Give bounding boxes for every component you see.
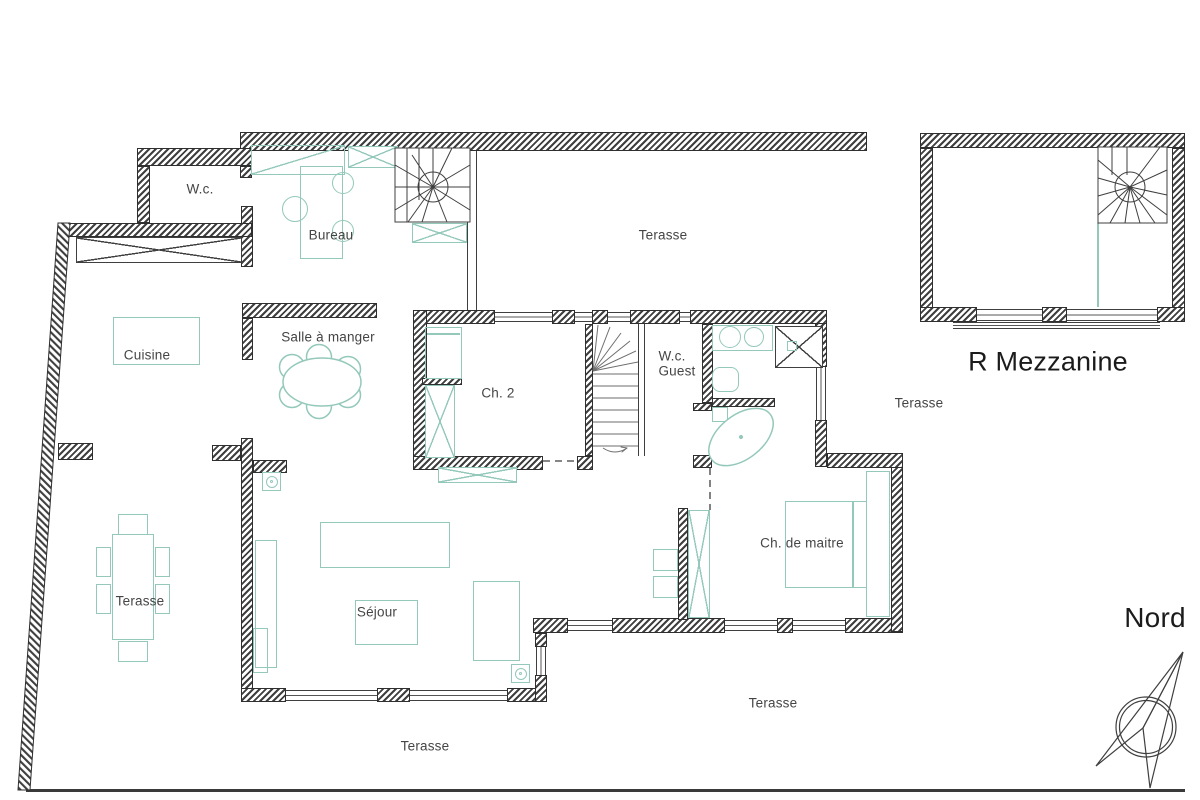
terrace-chair	[155, 547, 170, 577]
room-label-wc-guest-line2: Guest	[658, 364, 695, 379]
terrace-chair	[96, 547, 111, 577]
mezzanine-wall	[1172, 148, 1185, 322]
window	[1067, 309, 1157, 321]
wall-segment	[592, 310, 608, 324]
closet	[76, 237, 242, 263]
wall-segment	[422, 378, 462, 385]
area-label-terasse-left: Terasse	[116, 594, 165, 609]
wall-segment	[64, 223, 252, 237]
desk-chair	[332, 172, 354, 194]
terrace-chair	[96, 584, 111, 614]
room-label-ch2: Ch. 2	[481, 386, 514, 401]
wall-segment	[612, 618, 725, 633]
title-r-mezzanine: R Mezzanine	[968, 347, 1128, 378]
opening-dashed-line	[543, 461, 710, 510]
partition	[638, 324, 645, 456]
area-label-terasse-bottom-right: Terasse	[749, 696, 798, 711]
wall-segment	[533, 618, 568, 633]
area-label-terasse-right: Terasse	[895, 396, 944, 411]
wall-segment	[535, 675, 547, 702]
window	[977, 309, 1042, 321]
plan-linework	[0, 0, 1200, 800]
wall-segment	[242, 318, 253, 360]
terrace-chair	[118, 514, 148, 535]
wall-segment	[535, 633, 547, 647]
mezzanine-wall	[920, 133, 1185, 148]
room-label-ch-de-maitre: Ch. de maitre	[760, 536, 844, 551]
partition	[467, 151, 477, 310]
wardrobe	[425, 385, 455, 458]
mezzanine-wall	[920, 148, 933, 322]
wardrobe	[866, 471, 890, 617]
speaker	[262, 472, 281, 491]
wall-segment	[137, 166, 150, 223]
toilet	[712, 367, 739, 392]
media-cabinet	[253, 628, 268, 673]
room-label-cuisine: Cuisine	[124, 348, 170, 363]
window	[680, 312, 690, 322]
room-label-sejour: Séjour	[357, 605, 397, 620]
wall-segment	[712, 398, 775, 407]
speaker	[511, 664, 530, 683]
wall-segment	[241, 438, 253, 702]
slanted-wall	[18, 223, 70, 790]
window	[608, 312, 630, 322]
north-compass-icon	[1096, 652, 1183, 788]
room-label-wc-guest-line1: W.c.	[658, 349, 685, 364]
drawer-unit	[653, 549, 678, 571]
spiral-staircase-icon	[395, 148, 470, 222]
wall-segment	[693, 455, 712, 468]
wall-segment	[137, 148, 252, 166]
ch2-closet-shelf-line	[427, 333, 460, 335]
area-label-terasse-bottom-left: Terasse	[401, 739, 450, 754]
window	[725, 620, 777, 631]
sofa	[320, 522, 450, 568]
wall-segment	[577, 456, 593, 470]
window	[575, 312, 592, 322]
terrace-boundary-line	[26, 789, 1185, 792]
wall-segment	[690, 310, 827, 324]
wall-segment	[815, 420, 827, 467]
sink	[719, 326, 741, 348]
wall-segment	[630, 310, 680, 324]
area-label-terasse-top: Terasse	[639, 228, 688, 243]
wall-segment	[827, 453, 903, 468]
bed-headboard-line	[852, 501, 854, 588]
window	[536, 647, 546, 675]
wall-segment	[58, 443, 93, 460]
room-label-wc: W.c.	[186, 182, 213, 197]
wall-segment	[377, 688, 410, 702]
wall-segment	[242, 303, 377, 318]
dining-table-icon	[280, 345, 362, 419]
sofa	[473, 581, 520, 661]
terrace-chair	[118, 641, 148, 662]
window	[793, 620, 845, 631]
bench	[438, 467, 517, 483]
desk-chair	[282, 196, 308, 222]
floor-plan: W.c. Bureau Terasse Cuisine Salle à mang…	[0, 0, 1200, 800]
wall-segment	[693, 403, 712, 411]
wall-segment	[891, 467, 903, 632]
window	[495, 312, 552, 322]
staircase-icon	[593, 325, 638, 452]
wardrobe	[348, 146, 398, 168]
drawer-unit	[653, 576, 678, 598]
room-label-bureau: Bureau	[309, 228, 354, 243]
title-nord: Nord	[1124, 602, 1186, 634]
mezzanine-wall	[1157, 307, 1185, 322]
mezzanine-wall	[920, 307, 977, 322]
wall-segment	[585, 324, 593, 456]
window	[410, 690, 507, 701]
window	[286, 690, 377, 701]
mezzanine-spiral-staircase-icon	[1098, 147, 1167, 223]
window	[568, 620, 612, 631]
terrace-table	[112, 534, 154, 640]
mezzanine-edge-line	[1097, 223, 1099, 307]
closet	[688, 510, 710, 618]
ch2-closet	[425, 327, 462, 379]
shower-drain	[787, 341, 797, 351]
shower	[775, 326, 823, 368]
wall-segment	[678, 508, 688, 620]
room-label-salle-a-manger: Salle à manger	[281, 330, 375, 345]
stool	[712, 407, 728, 422]
wall-segment	[241, 688, 286, 702]
window	[816, 367, 826, 420]
wall-segment	[212, 445, 241, 461]
storage-box	[412, 223, 467, 243]
wall-segment	[777, 618, 793, 633]
mezzanine-wall	[1042, 307, 1067, 322]
sink	[744, 327, 764, 347]
wall-segment	[552, 310, 575, 324]
window-sill	[953, 322, 1160, 329]
